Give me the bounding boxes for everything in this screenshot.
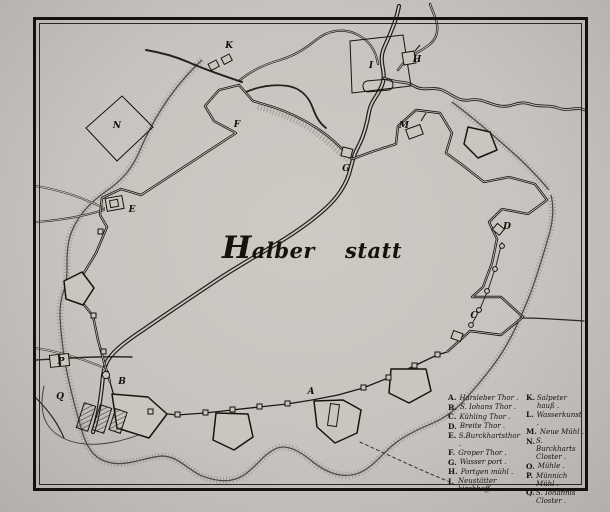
legend-label: S. Iohans Thor . [460, 403, 516, 412]
legend-label: Groper Thor . [458, 448, 507, 457]
map-marker-E: E [129, 205, 136, 215]
map-marker-A: A [308, 387, 315, 397]
legend-key: O. [526, 462, 535, 471]
legend-label: Portgen mühl . [461, 467, 514, 476]
legend-key: N. [526, 437, 533, 462]
map-marker-P: P [58, 357, 65, 367]
legend-entry: I.Neustätter kirchhoff . [448, 477, 520, 494]
legend-label: Münnich Mühl . [536, 471, 584, 488]
legend-key: M. [526, 427, 537, 436]
legend-key: K. [526, 393, 534, 410]
map-title-part1: Halber [222, 238, 315, 263]
legend-label: S. Iohannis Closter . [536, 488, 584, 505]
legend-label: Neustätter kirchhoff . [458, 477, 520, 494]
legend-label: Wasserkunst . [537, 410, 584, 427]
map-marker-B: B [118, 377, 126, 387]
legend-entry: P.Münnich Mühl . [526, 471, 584, 488]
legend-entry: G.Wasser port . [448, 458, 520, 467]
map-marker-I: I [369, 61, 373, 71]
legend-label: S. Burckharts Closter . [536, 437, 584, 462]
legend-label: Wasser port . [460, 458, 507, 467]
map-marker-N: N [113, 121, 121, 131]
legend-label: Kühling Thor . [459, 412, 510, 421]
legend-key: Q. [526, 488, 533, 505]
legend-label: Mühle . [538, 462, 565, 471]
map-title: Halber statt [222, 238, 392, 263]
map-marker-F: F [234, 120, 240, 130]
legend-entry: F.Groper Thor . [448, 448, 520, 457]
map-marker-M: M [399, 121, 409, 131]
legend-entry: O.Mühle . [526, 462, 584, 471]
legend-key: L. [526, 410, 534, 427]
map-marker-K: K [225, 41, 233, 51]
map-marker-D: D [503, 222, 511, 232]
map-marker-C: C [470, 311, 477, 321]
legend-key: I. [448, 477, 455, 494]
legend-column-1: A.Harsleber Thor .B.S. Iohans Thor .C.Kü… [448, 393, 520, 505]
legend-entry: A.Harsleber Thor . [448, 393, 520, 402]
legend-key: B. [448, 403, 457, 412]
map-marker-Q: Q [56, 392, 64, 402]
legend-entry: L.Wasserkunst . [526, 410, 584, 427]
legend-entry: E.S.Burckhartsthor . [448, 431, 520, 448]
legend-label: Breite Thor . [460, 422, 505, 431]
legend-key: E. [448, 431, 456, 448]
engraved-city-map: Halber statt ABCDEFGHIKMNPQ A.Harsleber … [0, 0, 610, 512]
legend-entry: K.Salpeter hauß . [526, 393, 584, 410]
legend-entry: H.Portgen mühl . [448, 467, 520, 476]
legend-entry: M.Neue Mühl . [526, 427, 584, 436]
legend-entry: B.S. Iohans Thor . [448, 403, 520, 412]
legend-key: H. [448, 467, 458, 476]
legend-label: Salpeter hauß . [537, 393, 584, 410]
legend-key: P. [526, 471, 533, 488]
legend-entry: N.S. Burckharts Closter . [526, 437, 584, 462]
map-marker-G: G [342, 164, 350, 174]
legend-entry: C.Kühling Thor . [448, 412, 520, 421]
legend-key: C. [448, 412, 456, 421]
legend: A.Harsleber Thor .B.S. Iohans Thor .C.Kü… [448, 393, 582, 505]
legend-key: F. [448, 448, 455, 457]
legend-key: D. [448, 422, 457, 431]
map-marker-H: H [413, 55, 422, 65]
legend-entry: Q.S. Iohannis Closter . [526, 488, 584, 505]
legend-key: A. [448, 393, 456, 402]
map-title-part2: statt [345, 238, 402, 263]
legend-label: Neue Mühl . [540, 427, 584, 436]
legend-entry: D.Breite Thor . [448, 422, 520, 431]
legend-columns: A.Harsleber Thor .B.S. Iohans Thor .C.Kü… [448, 393, 584, 505]
legend-label: S.Burckhartsthor . [459, 431, 520, 448]
legend-key: G. [448, 458, 457, 467]
legend-column-2: K.Salpeter hauß .L.Wasserkunst .M.Neue M… [526, 393, 584, 505]
legend-label: Harsleber Thor . [459, 393, 518, 402]
